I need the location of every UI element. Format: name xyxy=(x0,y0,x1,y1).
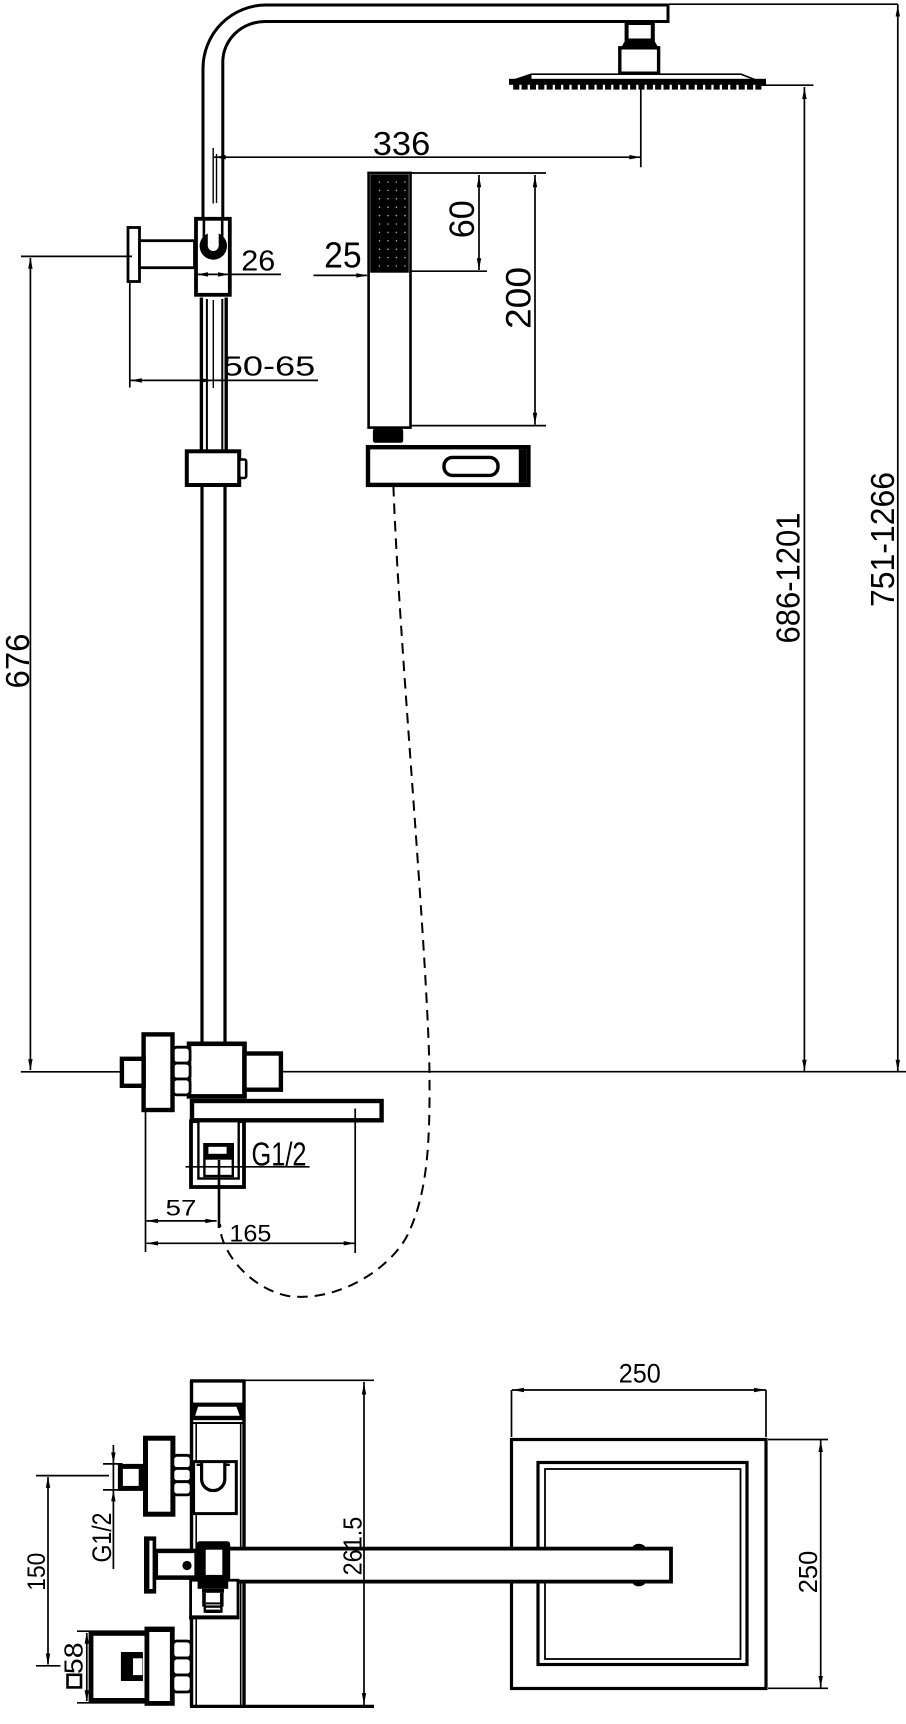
svg-text:751-1266: 751-1266 xyxy=(864,472,901,607)
svg-text:261.5: 261.5 xyxy=(340,1517,368,1576)
svg-text:165: 165 xyxy=(229,1220,271,1247)
svg-text:57: 57 xyxy=(166,1196,197,1221)
svg-text:676: 676 xyxy=(0,634,36,689)
svg-text:686-1201: 686-1201 xyxy=(770,513,807,644)
svg-text:G1/2: G1/2 xyxy=(87,1513,117,1563)
svg-text:336: 336 xyxy=(373,125,431,162)
svg-text:250: 250 xyxy=(793,1551,823,1594)
svg-text:26: 26 xyxy=(241,246,275,278)
svg-text:200: 200 xyxy=(499,267,538,329)
svg-text:150: 150 xyxy=(23,1553,51,1591)
svg-text:G1/2: G1/2 xyxy=(252,1136,307,1173)
svg-text:25: 25 xyxy=(324,235,362,276)
svg-text:58: 58 xyxy=(58,1643,88,1675)
svg-text:50-65: 50-65 xyxy=(223,351,316,382)
svg-text:60: 60 xyxy=(443,200,482,238)
svg-text:250: 250 xyxy=(619,1359,661,1389)
